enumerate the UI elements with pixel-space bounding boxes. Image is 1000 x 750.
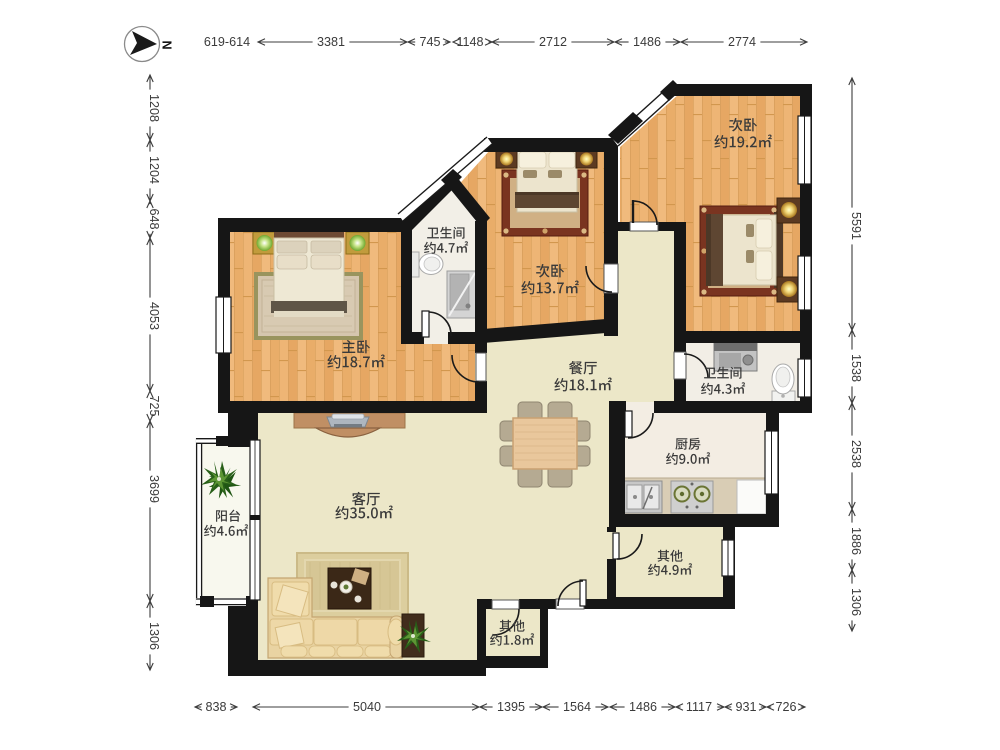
svg-text:2774: 2774 <box>728 35 756 49</box>
svg-text:931: 931 <box>735 700 756 714</box>
svg-text:1538: 1538 <box>849 354 863 382</box>
svg-text:2712: 2712 <box>539 35 567 49</box>
svg-text:1886: 1886 <box>849 527 863 555</box>
svg-text:1395: 1395 <box>497 700 525 714</box>
svg-text:4053: 4053 <box>147 302 161 330</box>
svg-text:3381: 3381 <box>317 35 345 49</box>
svg-text:1148: 1148 <box>456 35 483 49</box>
svg-text:1306: 1306 <box>849 588 863 616</box>
svg-text:725: 725 <box>147 395 161 416</box>
svg-text:1564: 1564 <box>563 700 591 714</box>
svg-text:1486: 1486 <box>629 700 657 714</box>
svg-text:N: N <box>160 40 174 49</box>
svg-text:1208: 1208 <box>147 94 161 122</box>
svg-text:726: 726 <box>775 700 796 714</box>
svg-text:1204: 1204 <box>147 156 161 184</box>
svg-text:745: 745 <box>419 35 440 49</box>
svg-text:1486: 1486 <box>633 35 661 49</box>
svg-text:1117: 1117 <box>686 700 712 714</box>
svg-text:5591: 5591 <box>849 212 863 240</box>
svg-text:1306: 1306 <box>147 622 161 650</box>
svg-text:838: 838 <box>205 700 226 714</box>
svg-text:5040: 5040 <box>353 700 381 714</box>
svg-text:2538: 2538 <box>849 440 863 468</box>
svg-text:619-614: 619-614 <box>204 35 250 49</box>
svg-text:3699: 3699 <box>147 475 161 503</box>
svg-text:648: 648 <box>147 208 161 229</box>
